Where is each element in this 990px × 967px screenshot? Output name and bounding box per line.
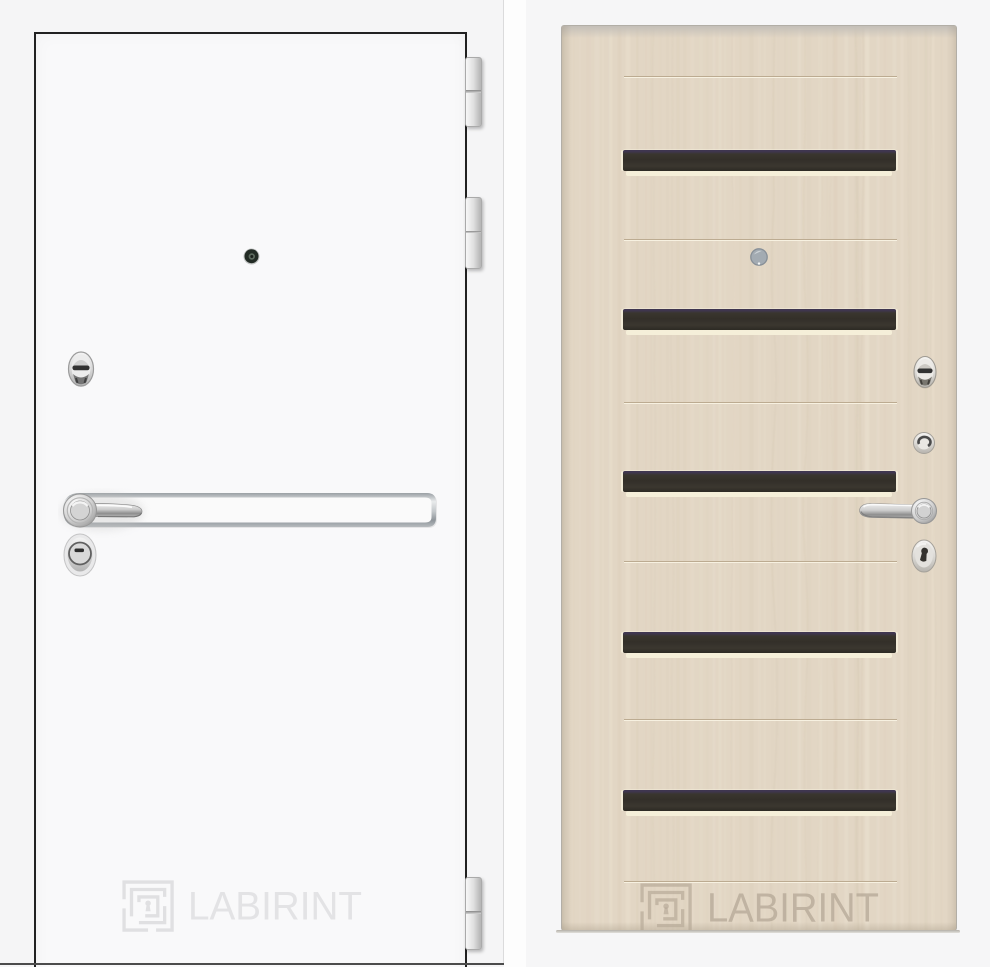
svg-text:LABIRINT: LABIRINT <box>707 885 879 931</box>
svg-text:LABIRINT: LABIRINT <box>188 885 362 929</box>
